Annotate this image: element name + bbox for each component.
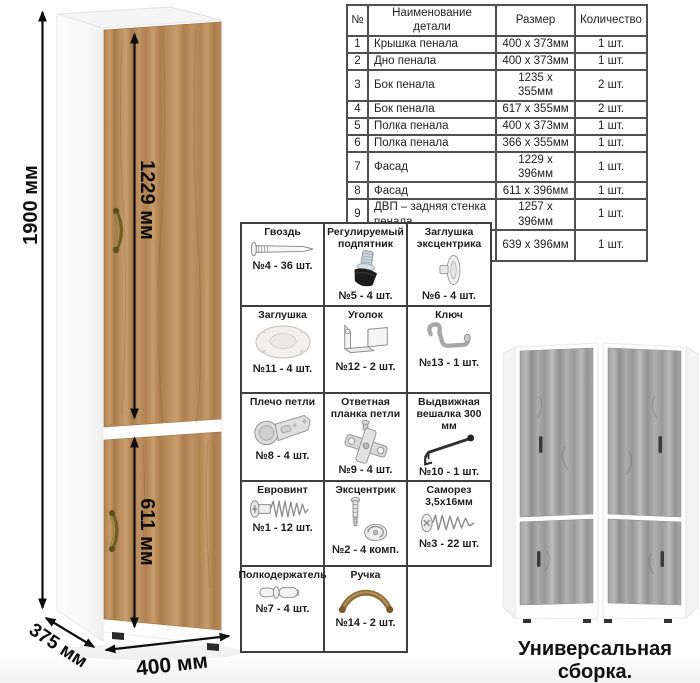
hardware-item: Эксцентрик №2 - 4 комп. bbox=[324, 481, 407, 566]
part-qty: 1 шт. bbox=[575, 182, 647, 199]
cabinet-foot bbox=[583, 619, 591, 623]
dimension-height-label: 1900 мм bbox=[20, 165, 42, 245]
hardware-item: Выдвижная вешалка 300 мм №10 - 1 шт. bbox=[407, 393, 491, 481]
hardware-item: Ответная планка петли №9 - 4 шт. bbox=[324, 393, 407, 481]
corner-bracket-icon bbox=[337, 321, 395, 361]
part-size: 611 x 396мм bbox=[496, 182, 575, 199]
hardware-row: Заглушка №11 - 4 шт. Уголок №12 - 2 шт. … bbox=[241, 306, 491, 393]
col-header-qty: Количество bbox=[575, 5, 647, 36]
part-name: Полка пенала bbox=[368, 135, 496, 152]
table-header-row: № Наименование детали Размер Количество bbox=[347, 5, 647, 36]
hex-key-icon bbox=[421, 321, 477, 357]
hardware-item: Плечо петли №8 - 4 шт. bbox=[241, 393, 324, 481]
part-no: 3 bbox=[347, 70, 368, 101]
part-no: 8 bbox=[347, 182, 368, 199]
part-size: 639 x 396мм bbox=[496, 230, 575, 261]
gray-cabinet-right bbox=[603, 343, 698, 623]
cabinet-foot bbox=[604, 619, 612, 623]
part-qty: 2 шт. bbox=[575, 70, 647, 101]
assembly-instruction-page: 1900 мм 1229 мм 611 мм 400 мм 375 мм № Н… bbox=[0, 0, 700, 683]
part-name: Бок пенала bbox=[368, 101, 496, 118]
hinge-plate-icon bbox=[339, 420, 393, 464]
nail-icon bbox=[249, 238, 317, 260]
cabinet-side-panel bbox=[57, 14, 103, 641]
empty-cell bbox=[407, 566, 491, 652]
floor-shade bbox=[0, 652, 700, 683]
part-name: Бок пенала bbox=[368, 70, 496, 101]
hardware-item: Ключ №13 - 1 шт. bbox=[407, 306, 491, 393]
part-qty: 2 шт. bbox=[575, 101, 647, 118]
dimension-lower-door-label: 611 мм bbox=[136, 498, 158, 565]
part-no: 5 bbox=[347, 118, 368, 135]
part-qty: 1 шт. bbox=[575, 36, 647, 53]
gray-cabinet-left bbox=[503, 343, 598, 623]
part-qty: 1 шт. bbox=[575, 53, 647, 70]
handle-icon bbox=[335, 581, 397, 617]
door-handle bbox=[661, 551, 665, 567]
part-no: 6 bbox=[347, 135, 368, 152]
part-size: 366 x 355мм bbox=[496, 135, 575, 152]
col-header-size: Размер bbox=[496, 5, 575, 36]
hardware-item: Евровинт №1 - 12 шт. bbox=[241, 481, 324, 566]
part-size: 1229 x 396мм bbox=[496, 152, 575, 183]
part-qty: 1 шт. bbox=[575, 118, 647, 135]
self-tapping-screw-icon bbox=[419, 508, 479, 538]
cabinet-illustration: 1900 мм 1229 мм 611 мм 400 мм 375 мм bbox=[0, 0, 246, 683]
part-no: 1 bbox=[347, 36, 368, 53]
hardware-item: Гвоздь №4 - 36 шт. bbox=[241, 223, 324, 306]
hardware-item: Саморез 3,5x16мм №3 - 22 шт. bbox=[407, 481, 491, 566]
dimension-upper-door-label: 1229 мм bbox=[136, 160, 158, 240]
hardware-row: Плечо петли №8 - 4 шт. Ответная планка п… bbox=[241, 393, 491, 481]
table-row: 8Фасад611 x 396мм1 шт. bbox=[347, 182, 647, 199]
col-header-name: Наименование детали bbox=[368, 5, 496, 36]
part-no: 7 bbox=[347, 152, 368, 183]
col-header-number: № bbox=[347, 5, 368, 36]
adjustable-foot-icon bbox=[345, 250, 387, 290]
part-name: Фасад bbox=[368, 152, 496, 183]
lower-door bbox=[104, 432, 221, 630]
door-handle bbox=[659, 436, 663, 453]
hardware-row: Гвоздь №4 - 36 шт. Регулируемый подпятни… bbox=[241, 223, 491, 306]
cabinet-foot bbox=[112, 632, 124, 640]
hardware-grid: Гвоздь №4 - 36 шт. Регулируемый подпятни… bbox=[240, 222, 492, 653]
part-qty: 1 шт. bbox=[575, 199, 647, 230]
part-size: 1235 x 355мм bbox=[496, 70, 575, 101]
part-name: Фасад bbox=[368, 182, 496, 199]
part-size: 400 x 373мм bbox=[496, 53, 575, 70]
part-qty: 1 шт. bbox=[575, 135, 647, 152]
table-row: 5Полка пенала400 x 373мм1 шт. bbox=[347, 118, 647, 135]
euroscrew-icon bbox=[249, 496, 317, 522]
universal-assembly-illustration bbox=[495, 336, 700, 636]
table-row: 1Крышка пенала400 x 373мм1 шт. bbox=[347, 36, 647, 53]
table-row: 6Полка пенала366 x 355мм1 шт. bbox=[347, 135, 647, 152]
cabinet-foot bbox=[523, 619, 531, 623]
part-name: Крышка пенала bbox=[368, 36, 496, 53]
hardware-item: Полкодержатель №7 - 4 шт. bbox=[241, 566, 324, 652]
hardware-row: Полкодержатель №7 - 4 шт. Ручка №14 - 2 … bbox=[241, 566, 491, 652]
hardware-row: Евровинт №1 - 12 шт. Эксцентрик №2 - 4 к… bbox=[241, 481, 491, 566]
table-row: 3Бок пенала1235 x 355мм2 шт. bbox=[347, 70, 647, 101]
cam-cover-icon bbox=[430, 250, 468, 290]
part-qty: 1 шт. bbox=[575, 230, 647, 261]
hardware-item: Ручка №14 - 2 шт. bbox=[324, 566, 407, 652]
cabinet-foot bbox=[664, 619, 672, 623]
door-handle bbox=[539, 436, 543, 453]
part-size: 400 x 373мм bbox=[496, 36, 575, 53]
hardware-item: Заглушка эксцентрика №6 - 4 шт. bbox=[407, 223, 491, 306]
part-size: 1257 x 396мм bbox=[496, 199, 575, 230]
cam-lock-icon bbox=[339, 496, 393, 544]
hinge-arm-icon bbox=[252, 408, 314, 450]
part-size: 400 x 373мм bbox=[496, 118, 575, 135]
table-row: 2Дно пенала400 x 373мм1 шт. bbox=[347, 53, 647, 70]
door-handle bbox=[537, 551, 541, 567]
part-qty: 1 шт. bbox=[575, 152, 647, 183]
part-no: 2 bbox=[347, 53, 368, 70]
hardware-item: Регулируемый подпятник №5 - 4 шт. bbox=[324, 223, 407, 306]
pullout-hanger-icon bbox=[418, 432, 480, 466]
table-row: 4Бок пенала617 x 355мм2 шт. bbox=[347, 101, 647, 118]
cap-icon bbox=[252, 321, 314, 363]
cabinet-foot bbox=[207, 643, 219, 651]
part-size: 617 x 355мм bbox=[496, 101, 575, 118]
hardware-item: Заглушка №11 - 4 шт. bbox=[241, 306, 324, 393]
part-name: Полка пенала bbox=[368, 118, 496, 135]
part-no: 4 bbox=[347, 101, 368, 118]
table-row: 7Фасад1229 x 396мм1 шт. bbox=[347, 152, 647, 183]
shelf-pin-icon bbox=[255, 581, 311, 603]
hardware-item: Уголок №12 - 2 шт. bbox=[324, 306, 407, 393]
part-name: Дно пенала bbox=[368, 53, 496, 70]
